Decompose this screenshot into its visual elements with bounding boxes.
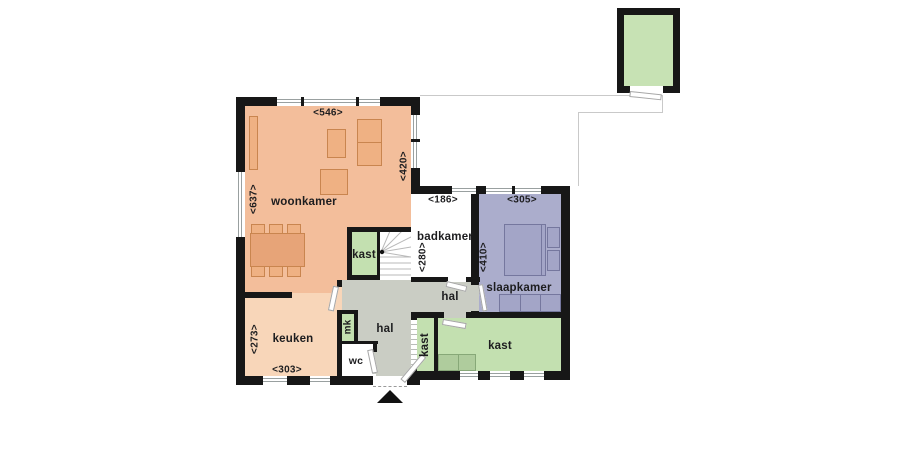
armchair	[327, 129, 346, 158]
window	[452, 186, 476, 194]
wardrobe-divider	[520, 295, 521, 311]
dining-table	[250, 233, 305, 267]
pillow	[547, 250, 560, 271]
dining-chair	[287, 266, 301, 277]
room-label-woonkamer: woonkamer	[271, 196, 337, 208]
armchair	[320, 169, 348, 195]
dim-546: <546>	[313, 108, 343, 119]
room-label-hal-right: hal	[441, 291, 458, 303]
room-label-mk: mk	[343, 320, 354, 335]
shed-floor	[624, 15, 673, 86]
dim-305: <305>	[507, 195, 537, 206]
door-opening-kast	[444, 312, 466, 318]
bed-headboard-line	[541, 225, 542, 275]
window	[236, 172, 245, 237]
window	[263, 376, 287, 385]
wall-segment	[377, 231, 380, 280]
window	[277, 97, 380, 106]
dining-chair	[251, 266, 265, 277]
wall-segment	[411, 277, 448, 282]
window-mullion	[512, 186, 515, 194]
room-label-wc: wc	[349, 355, 363, 367]
window	[460, 371, 478, 380]
bed	[504, 224, 546, 276]
wall-segment	[354, 310, 358, 344]
wall-segment	[411, 313, 417, 320]
room-label-kast-hall: kast	[419, 333, 431, 357]
room-label-hal-center: hal	[376, 323, 393, 335]
cabinet-divider	[458, 355, 459, 370]
room-label-keuken: keuken	[273, 333, 314, 345]
dim-280: <280>	[418, 242, 429, 272]
dim-303: <303>	[272, 365, 302, 376]
window	[310, 376, 330, 385]
room-label-kast-bedroom: kast	[488, 340, 512, 352]
window	[524, 371, 544, 380]
dim-420: <420>	[399, 151, 410, 181]
entrance-threshold	[373, 386, 407, 388]
dining-chair	[269, 266, 283, 277]
property-line	[578, 112, 663, 113]
entrance-arrow-icon	[377, 390, 403, 403]
window-mullion	[301, 97, 304, 106]
wall-exterior-left	[236, 97, 245, 385]
closet-cabinet	[438, 354, 476, 371]
window	[490, 371, 510, 380]
window-mullion	[356, 97, 359, 106]
wardrobe	[499, 294, 561, 312]
stairs	[380, 231, 411, 280]
property-line	[662, 95, 663, 113]
property-line	[420, 95, 663, 96]
room-label-kast-stairs: kast	[352, 249, 376, 261]
wall-wing-right	[561, 186, 570, 380]
property-line	[578, 112, 579, 186]
dim-186: <186>	[428, 195, 458, 206]
sideboard	[249, 116, 258, 170]
dim-410: <410>	[479, 242, 490, 272]
wall-segment	[347, 275, 378, 280]
dim-273: <273>	[250, 324, 261, 354]
stairs-treads	[380, 231, 411, 280]
wardrobe-divider	[540, 295, 541, 311]
wall-segment	[466, 312, 566, 318]
window-mullion	[411, 139, 420, 142]
dim-637: <637>	[249, 184, 260, 214]
pillow	[547, 227, 560, 248]
sofa	[357, 119, 382, 166]
room-label-slaapkamer: slaapkamer	[486, 282, 551, 294]
floor-plan: woonkamer keuken badkamer slaapkamer hal…	[0, 0, 905, 460]
wall-segment	[337, 341, 378, 344]
sofa-cushion-line	[358, 142, 381, 143]
